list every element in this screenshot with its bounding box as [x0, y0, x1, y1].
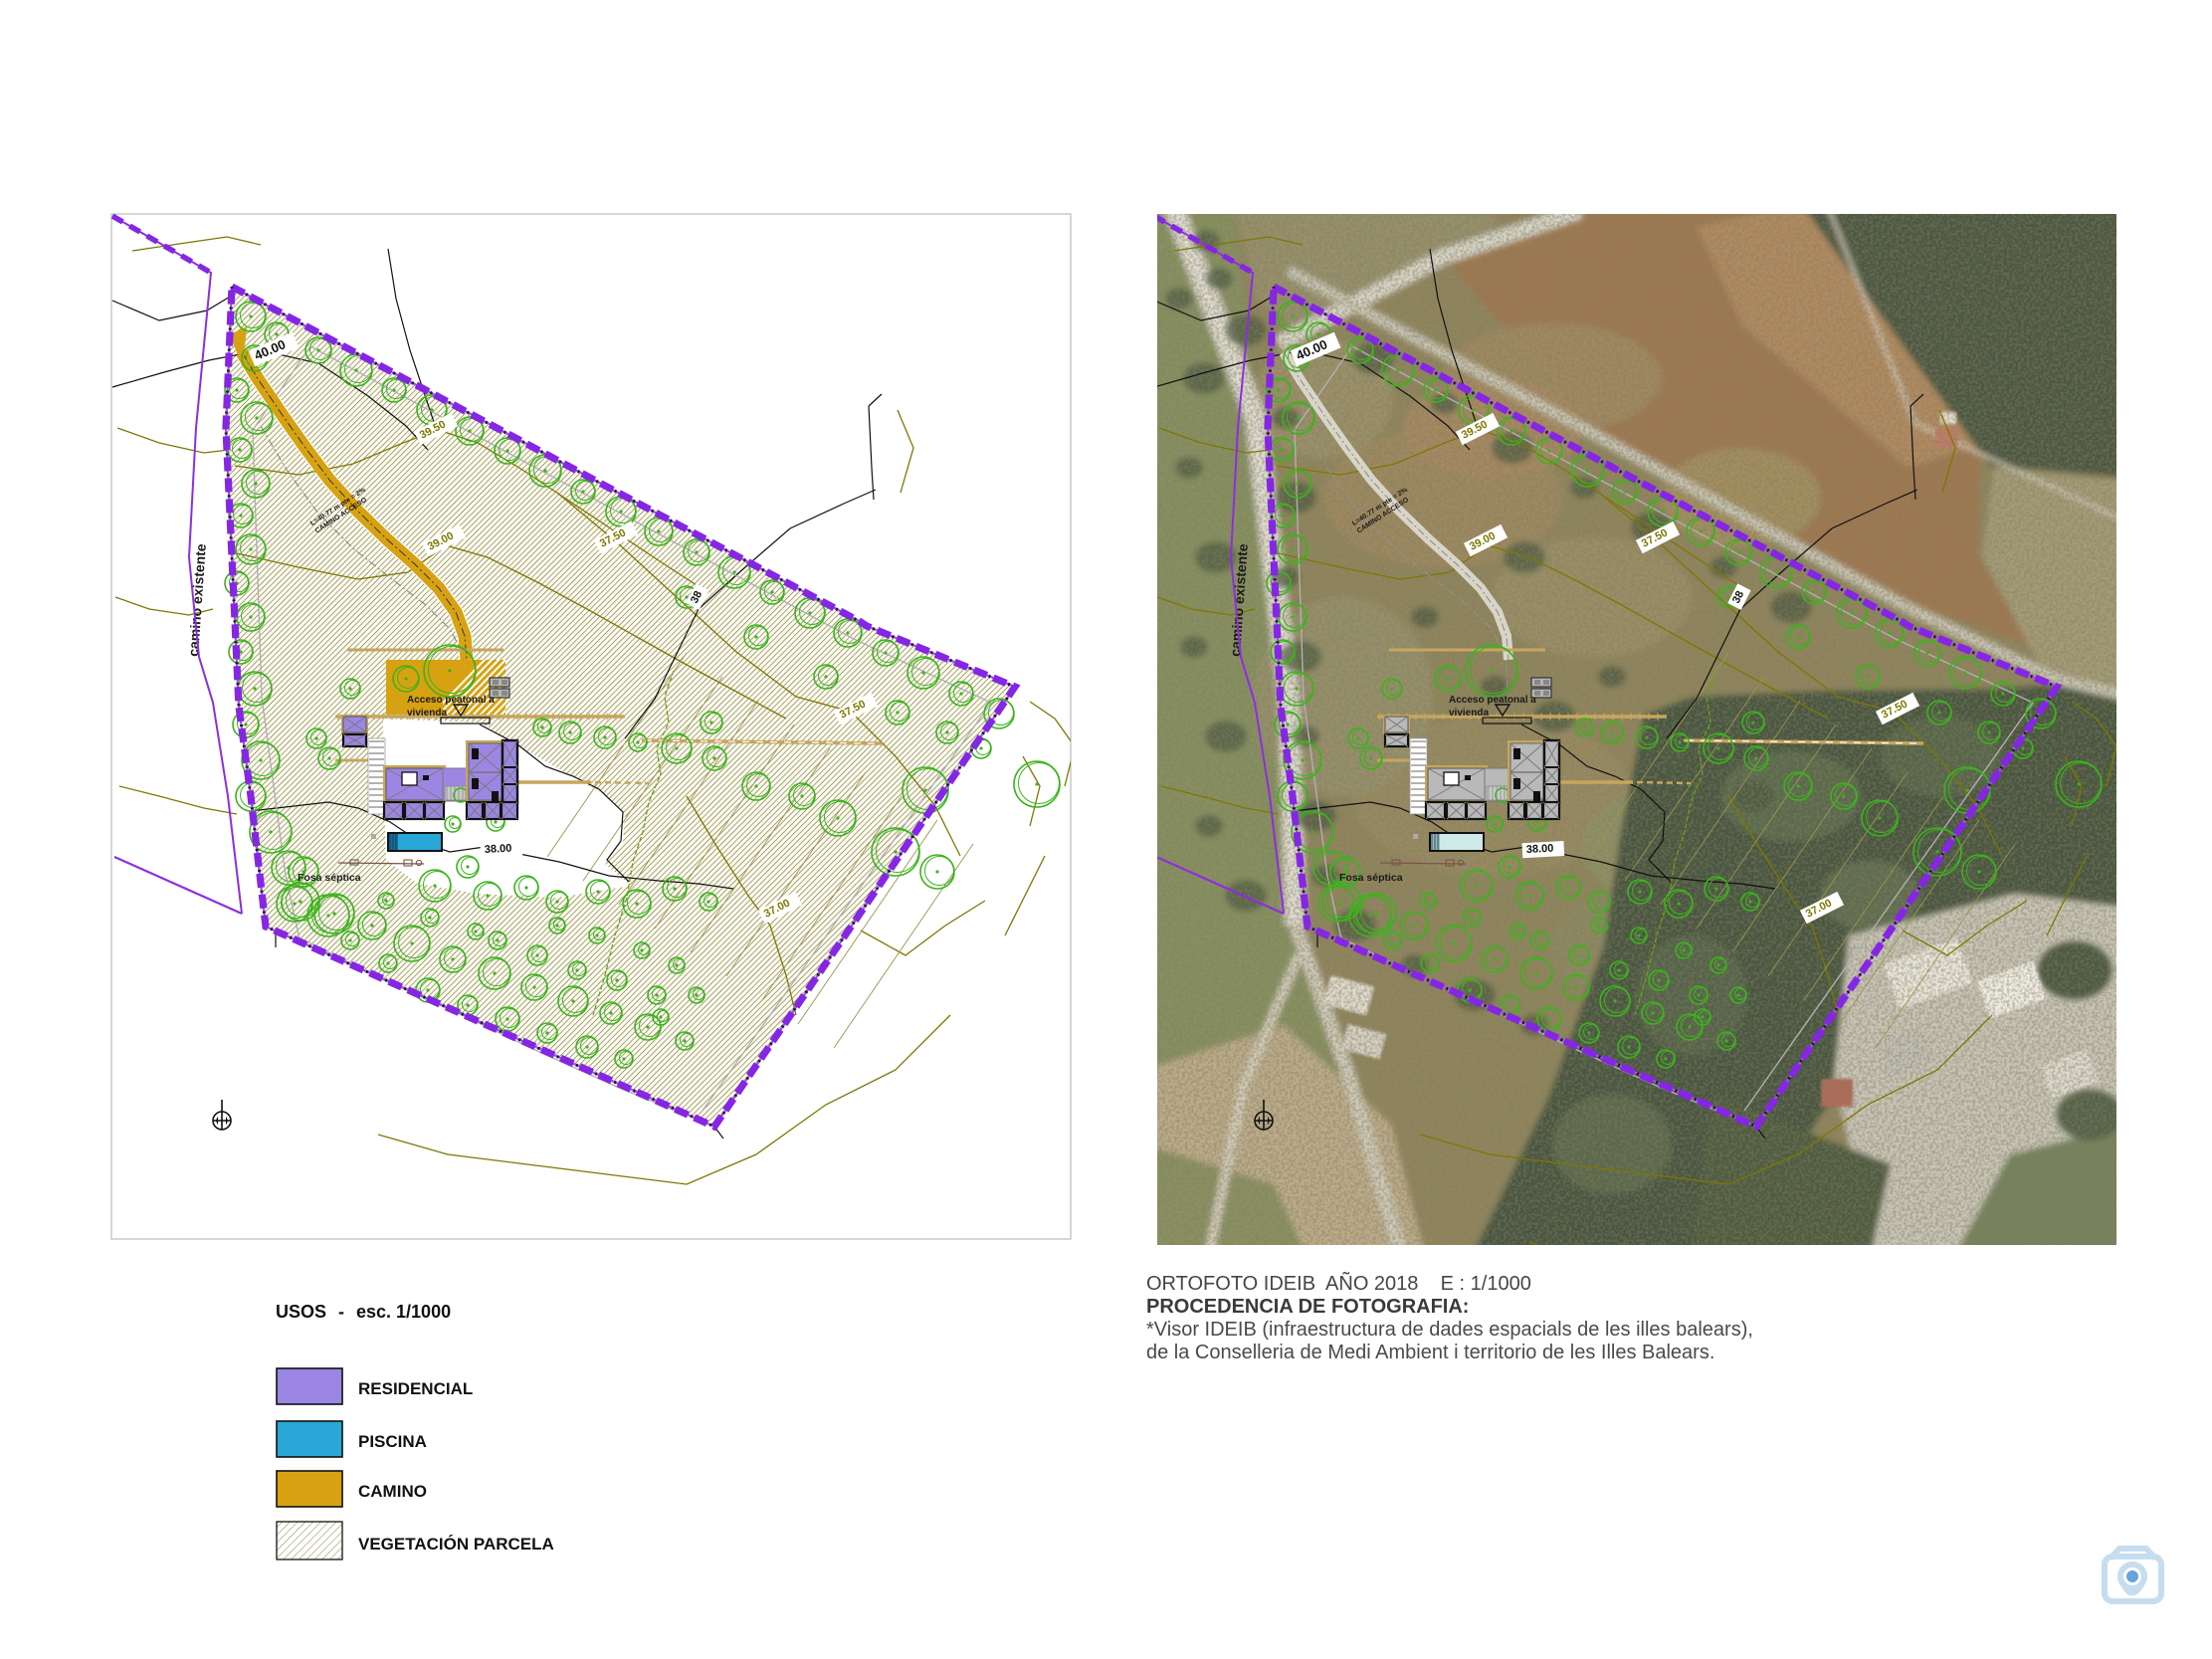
svg-text:Fosa séptica: Fosa séptica: [298, 872, 361, 884]
svg-text:vivienda: vivienda: [1449, 708, 1489, 719]
svg-text:38.00: 38.00: [485, 843, 512, 856]
svg-text:38.00: 38.00: [1526, 843, 1554, 856]
svg-text:vivienda: vivienda: [407, 708, 447, 719]
svg-text:VEGETACIÓN PARCELA: VEGETACIÓN PARCELA: [358, 1535, 554, 1554]
svg-text:Acceso peatonal a: Acceso peatonal a: [407, 695, 495, 706]
svg-text:CAMINO: CAMINO: [358, 1482, 427, 1501]
svg-text:-: -: [338, 1302, 344, 1322]
svg-text:Acceso peatonal a: Acceso peatonal a: [1449, 695, 1536, 706]
svg-text:PROCEDENCIA DE FOTOGRAFIA:: PROCEDENCIA DE FOTOGRAFIA:: [1146, 1296, 1469, 1318]
svg-text:USOS: USOS: [276, 1302, 326, 1322]
svg-text:PISCINA: PISCINA: [358, 1432, 427, 1451]
svg-text:ORTOFOTO IDEIB AÑO 2018 E: ORTOFOTO IDEIB AÑO 2018 E : 1/1000: [1146, 1271, 1531, 1295]
svg-text:de la Conselleria de Medi Ambi: de la Conselleria de Medi Ambient i terr…: [1146, 1342, 1714, 1363]
svg-text:Fosa séptica: Fosa séptica: [1339, 872, 1403, 884]
svg-text:RESIDENCIAL: RESIDENCIAL: [358, 1379, 473, 1398]
svg-text:*Visor IDEIB (infraestructura: *Visor IDEIB (infraestructura de dades e…: [1146, 1319, 1753, 1341]
svg-text:esc. 1/1000: esc. 1/1000: [356, 1302, 451, 1322]
